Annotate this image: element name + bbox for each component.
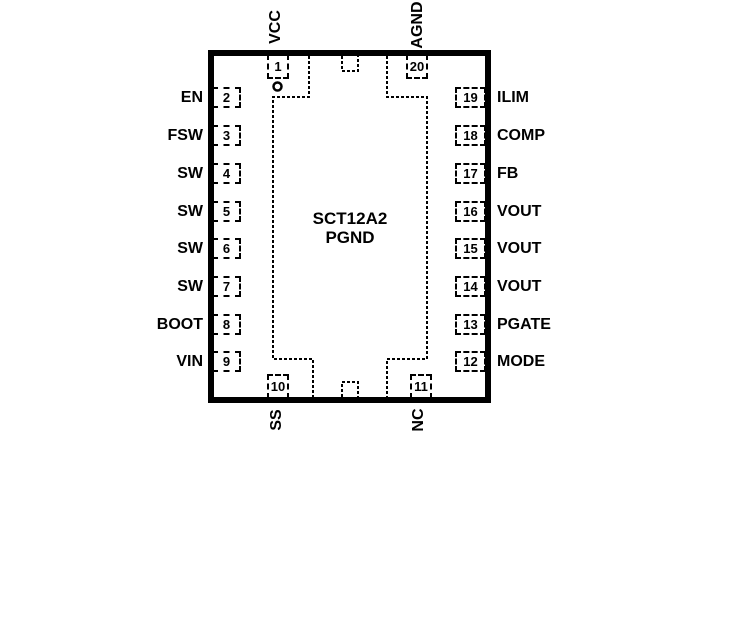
pinout-diagram: SCT12A2 PGND 1 20 VCC AGND 10 11 SS NC E… <box>0 0 740 644</box>
pin-label-boot: BOOT <box>53 314 203 335</box>
pin-label-fb: FB <box>497 163 647 184</box>
pin-box-6: 6 <box>212 238 241 259</box>
chip-pad-label: PGND <box>275 228 425 247</box>
pin-box-19: 19 <box>455 87 486 108</box>
pin-label-sw-4: SW <box>53 163 203 184</box>
pin-box-8: 8 <box>212 314 241 335</box>
pin-box-5: 5 <box>212 201 241 222</box>
pin-box-17: 17 <box>455 163 486 184</box>
pin-box-18: 18 <box>455 125 486 146</box>
pin-box-7: 7 <box>212 276 241 297</box>
pin-label-vcc: VCC <box>267 0 285 62</box>
pin-box-13: 13 <box>455 314 486 335</box>
pin-box-14: 14 <box>455 276 486 297</box>
pin-label-comp: COMP <box>497 125 647 146</box>
pin-label-sw-7: SW <box>53 276 203 297</box>
pin-label-vout-15: VOUT <box>497 238 647 259</box>
pin-label-ilim: ILIM <box>497 87 647 108</box>
chip-part-number: SCT12A2 <box>275 209 425 228</box>
pin-label-en: EN <box>53 87 203 108</box>
chip-title: SCT12A2 PGND <box>275 209 425 247</box>
pin-box-16: 16 <box>455 201 486 222</box>
pin-label-vout-14: VOUT <box>497 276 647 297</box>
pin-box-2: 2 <box>212 87 241 108</box>
pin-box-12: 12 <box>455 351 486 372</box>
pin-label-sw-6: SW <box>53 238 203 259</box>
pin-box-9: 9 <box>212 351 241 372</box>
pin-label-nc: NC <box>410 385 428 455</box>
pin-label-vin: VIN <box>53 351 203 372</box>
pin-label-pgate: PGATE <box>497 314 647 335</box>
pin-box-3: 3 <box>212 125 241 146</box>
pin-label-sw-5: SW <box>53 201 203 222</box>
pin-label-vout-16: VOUT <box>497 201 647 222</box>
pin-box-4: 4 <box>212 163 241 184</box>
pin-label-mode: MODE <box>497 351 647 372</box>
pin-label-agnd: AGND <box>409 0 427 60</box>
pin-label-fsw: FSW <box>53 125 203 146</box>
pin-label-ss: SS <box>268 385 286 455</box>
pin-box-15: 15 <box>455 238 486 259</box>
